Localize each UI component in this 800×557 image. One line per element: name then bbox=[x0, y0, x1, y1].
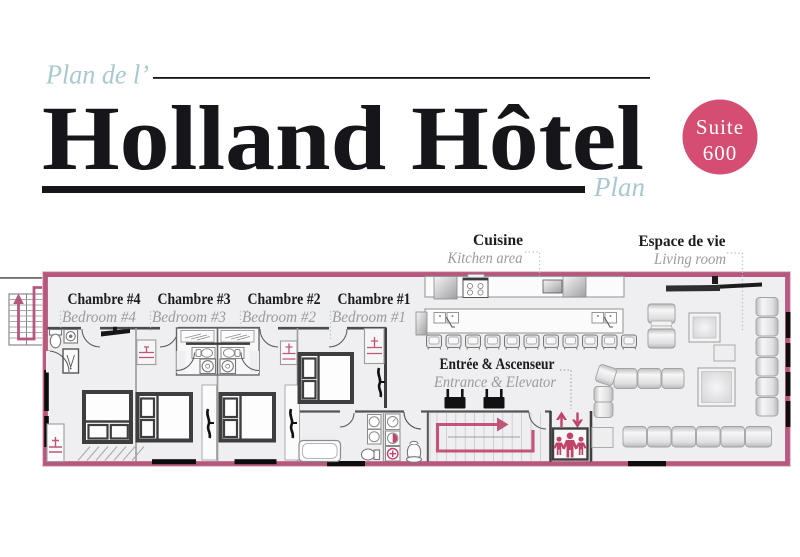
svg-text:Suite: Suite bbox=[696, 115, 744, 139]
svg-text:Kitchen area: Kitchen area bbox=[447, 250, 523, 267]
svg-text:600: 600 bbox=[703, 141, 738, 165]
svg-text:Plan de l’: Plan de l’ bbox=[45, 60, 149, 90]
svg-text:Chambre #1: Chambre #1 bbox=[338, 291, 411, 308]
svg-text:Plan: Plan bbox=[593, 172, 645, 202]
svg-text:Bedroom #3: Bedroom #3 bbox=[152, 309, 226, 326]
svg-text:Cuisine: Cuisine bbox=[473, 232, 523, 249]
svg-text:Chambre #3: Chambre #3 bbox=[158, 291, 231, 308]
svg-text:Espace de vie: Espace de vie bbox=[639, 233, 726, 250]
svg-text:Chambre #2: Chambre #2 bbox=[248, 291, 321, 308]
svg-text:Living room: Living room bbox=[653, 251, 726, 268]
svg-text:Bedroom #1: Bedroom #1 bbox=[332, 309, 406, 326]
svg-text:Chambre #4: Chambre #4 bbox=[68, 291, 141, 308]
svg-text:Entrance & Elevator: Entrance & Elevator bbox=[433, 374, 557, 391]
svg-text:Bedroom #2: Bedroom #2 bbox=[242, 309, 316, 326]
svg-text:Bedroom #4: Bedroom #4 bbox=[62, 309, 136, 326]
svg-text:Holland Hôtel: Holland Hôtel bbox=[42, 87, 644, 189]
svg-text:Entrée & Ascenseur: Entrée & Ascenseur bbox=[440, 356, 555, 373]
